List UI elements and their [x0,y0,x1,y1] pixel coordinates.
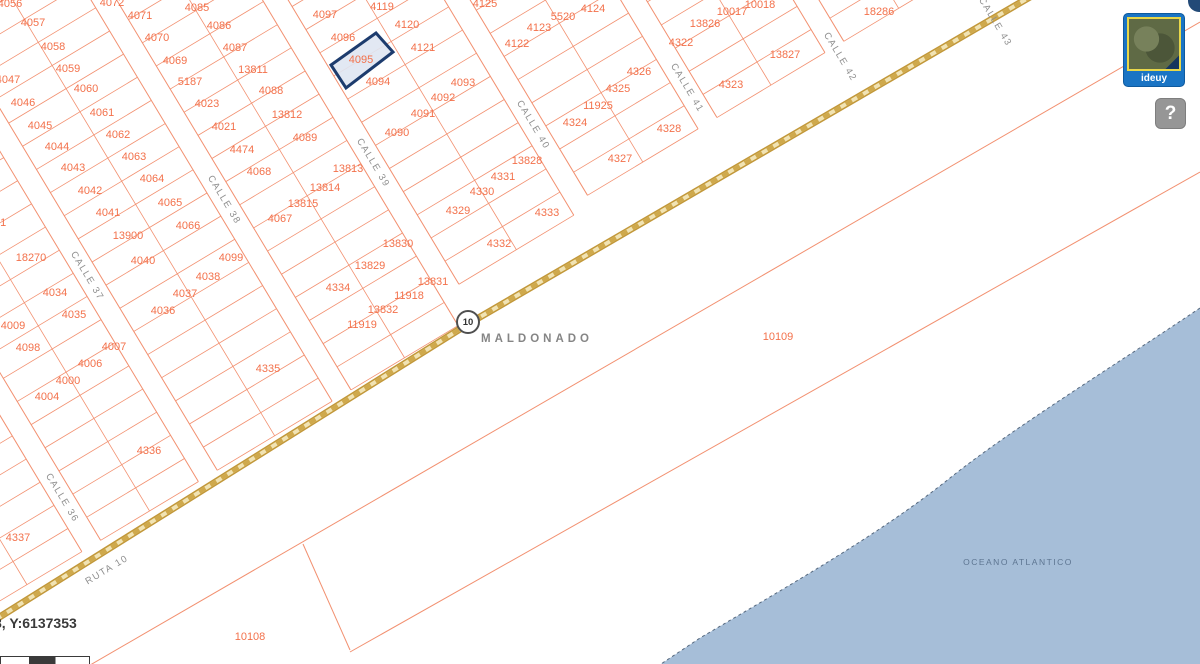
parcel-boundary [59,412,157,471]
selected-parcel[interactable] [331,33,393,88]
parcel-boundary [0,227,45,286]
parcel-boundary [203,378,318,447]
parcel-boundary [36,100,151,169]
parcel-boundary [170,25,277,89]
parcel-boundary [0,250,59,309]
parcel-boundary [0,8,96,77]
parcel-boundary [170,0,458,326]
scale-bar [0,656,90,664]
parcel-boundary [189,355,304,424]
help-button[interactable]: ? [1155,98,1186,129]
parcel-boundary [417,146,532,215]
parcel-boundary [148,286,263,355]
parcel-boundary [3,320,101,379]
parcel-boundary [306,0,421,30]
parcel-boundary [198,71,305,135]
parcel-boundary [101,482,199,541]
parcel-boundary [0,204,32,263]
parcel-boundary [490,0,601,33]
parcel-boundary [574,106,685,172]
parcel-boundary [0,505,54,571]
overview-map-label: ideuy [1124,71,1184,86]
parcel-boundary [703,29,811,94]
parcel-boundary [106,216,221,285]
parcel-boundary [452,0,717,118]
parcel-boundary [445,192,560,261]
parcel-boundary [504,0,615,56]
parcel-boundary [0,0,82,54]
parcel-boundary [176,332,291,401]
parcel-boundary [0,105,27,585]
parcel-boundary [0,0,68,31]
route-10-shield: 10 [456,310,480,334]
coastal-parcel-line [303,544,350,650]
parcel-boundary [323,279,430,343]
parcel-boundary [830,0,940,18]
parcel-boundary [120,239,235,308]
parcel-boundary [0,482,40,548]
parcel-boundary [717,53,825,118]
parcel-boundary [844,0,954,41]
parcel-boundary [156,2,263,66]
parcel-boundary [78,170,193,239]
parcel-boundary [518,13,629,79]
parcel-boundary [309,256,416,320]
uruguay-satellite-thumbnail-icon [1127,17,1181,71]
parcel-boundary [431,169,546,238]
parcel-boundary [689,6,797,71]
parcel-boundary [17,343,115,402]
parcel-boundary [389,99,504,168]
map-canvas[interactable]: 4056407240854119412541241001810017182864… [0,0,1200,664]
parcel-boundary [162,309,277,378]
parcel-boundary [189,0,459,284]
parcel-boundary [0,296,87,355]
parcel-boundary [0,60,101,540]
parcel-boundary [0,0,275,436]
parcel-boundary [45,389,143,448]
parcel-boundary [63,0,351,390]
parcel-boundary [9,54,124,123]
overview-map-button[interactable]: ideuy [1123,13,1185,87]
parcel-boundary [0,459,26,525]
parcel-boundary [351,326,458,390]
parcel-boundary [633,0,898,8]
parcel-boundary [588,129,699,195]
parcel-boundary [378,0,643,162]
parcel-boundary [532,36,643,102]
parcel-boundary [23,77,138,146]
parcel-boundary [134,262,249,331]
parcel-boundary [50,124,165,193]
parcel-boundary [403,123,518,192]
parcel-boundary [281,210,388,274]
parcel-boundary [64,147,179,216]
parcel-boundary [579,0,844,41]
parcel-boundary [217,401,332,470]
parcel-boundary [73,435,171,494]
parcel-boundary [31,366,129,425]
parcel-boundary [184,48,291,112]
parcel-boundary [546,59,657,125]
parcel-boundary [376,76,491,145]
parcel-boundary [506,0,771,85]
parcel-boundary [92,193,207,262]
parcel-boundary [128,0,235,20]
parcel-boundary [0,158,4,217]
parcel-boundary [254,164,361,228]
parcel-boundary [226,117,333,181]
parcel-boundary [661,0,769,25]
parcel-boundary [295,233,402,297]
parcel-boundary [560,83,671,149]
parcel-boundary [44,0,332,401]
parcel-boundary [240,140,347,204]
parcel-boundary [268,187,375,251]
parcel-boundary [142,0,249,43]
parcel-boundary [0,181,18,240]
parcel-boundary [0,2,198,482]
parcel-boundary [212,94,319,158]
parcel-boundary [0,72,82,552]
cursor-coordinates: 8, Y:6137353 [0,615,77,631]
parcel-boundary [0,31,110,100]
parcel-boundary [337,302,444,366]
cadastral-map-layer [0,0,1200,664]
